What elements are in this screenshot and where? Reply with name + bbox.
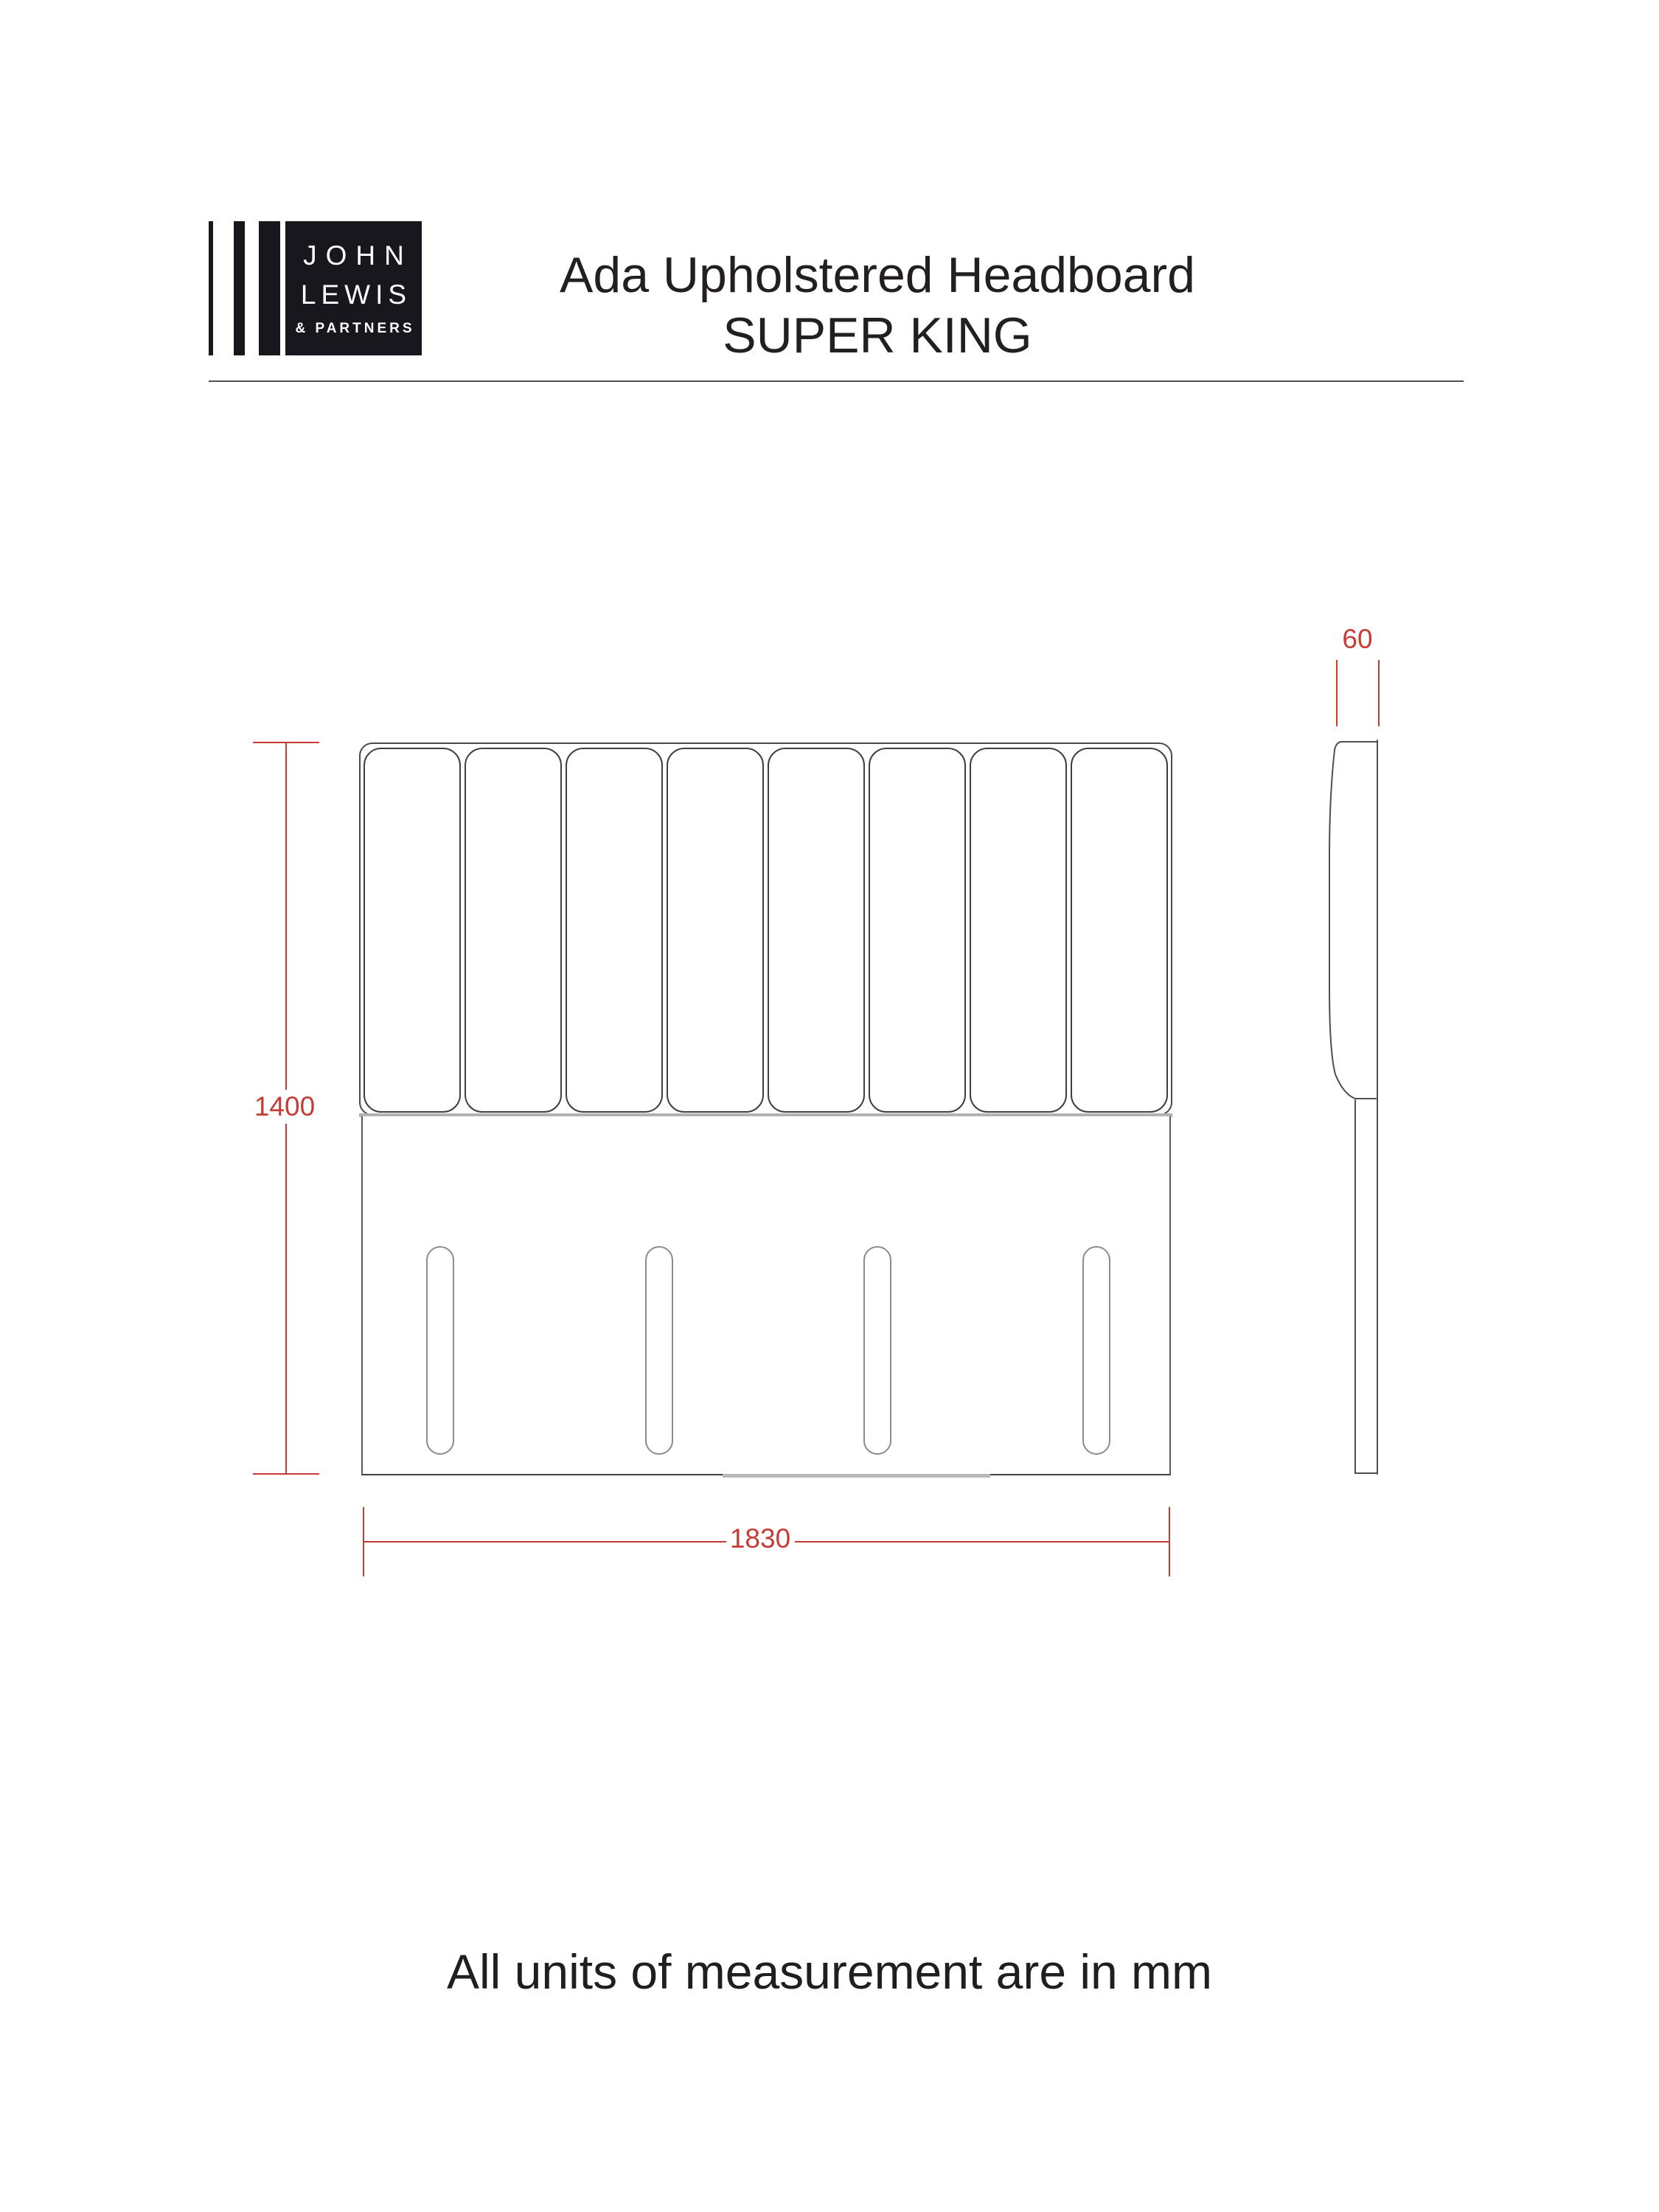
panel-row bbox=[364, 748, 1168, 1113]
logo-word-john: JOHN bbox=[303, 240, 413, 271]
headboard-side-profile bbox=[1324, 734, 1386, 1482]
headboard-cushion-panel bbox=[970, 748, 1067, 1113]
width-dimension-tick-left bbox=[363, 1507, 364, 1576]
width-dimension-line-left bbox=[364, 1541, 726, 1543]
page-subtitle-size: SUPER KING bbox=[509, 308, 1246, 364]
width-dimension-line-right bbox=[795, 1541, 1169, 1543]
height-dimension-tick-top bbox=[253, 742, 319, 743]
height-dimension-value: 1400 bbox=[243, 1091, 326, 1122]
strut-slot bbox=[863, 1246, 891, 1455]
logo-stripe-medium bbox=[234, 221, 245, 355]
john-lewis-logo: JOHN LEWIS & PARTNERS bbox=[285, 221, 422, 355]
logo-word-lewis: LEWIS bbox=[301, 279, 411, 310]
header-divider-line bbox=[209, 380, 1464, 382]
page-title: Ada Upholstered Headboard bbox=[509, 248, 1246, 303]
depth-dimension-line-right bbox=[1378, 660, 1380, 726]
logo-stripe-wide bbox=[259, 221, 280, 355]
headboard-cushion-panel bbox=[364, 748, 461, 1113]
headboard-cushion-panel bbox=[667, 748, 764, 1113]
depth-dimension-value: 60 bbox=[1321, 624, 1394, 655]
width-dimension-value: 1830 bbox=[709, 1523, 812, 1554]
height-dimension-line-upper bbox=[285, 743, 287, 1090]
strut-slot bbox=[426, 1246, 454, 1455]
depth-dimension-line-left bbox=[1336, 660, 1338, 726]
logo-word-partners: & PARTNERS bbox=[295, 321, 414, 337]
base-bottom-edge-shadow bbox=[723, 1474, 990, 1478]
headboard-cushion-panel bbox=[566, 748, 663, 1113]
headboard-cushion-panel bbox=[465, 748, 562, 1113]
units-note: All units of measurement are in mm bbox=[0, 1944, 1659, 2000]
strut-slot bbox=[1082, 1246, 1110, 1455]
headboard-cushion-panel bbox=[1071, 748, 1168, 1113]
headboard-cushion-panel bbox=[768, 748, 865, 1113]
headboard-cushion-panel bbox=[869, 748, 966, 1113]
logo-stripe-thin bbox=[209, 221, 213, 355]
headboard-base-panel bbox=[361, 1116, 1171, 1475]
height-dimension-tick-bottom bbox=[253, 1473, 319, 1475]
width-dimension-tick-right bbox=[1169, 1507, 1170, 1576]
height-dimension-line-lower bbox=[285, 1124, 287, 1475]
strut-slot bbox=[645, 1246, 673, 1455]
